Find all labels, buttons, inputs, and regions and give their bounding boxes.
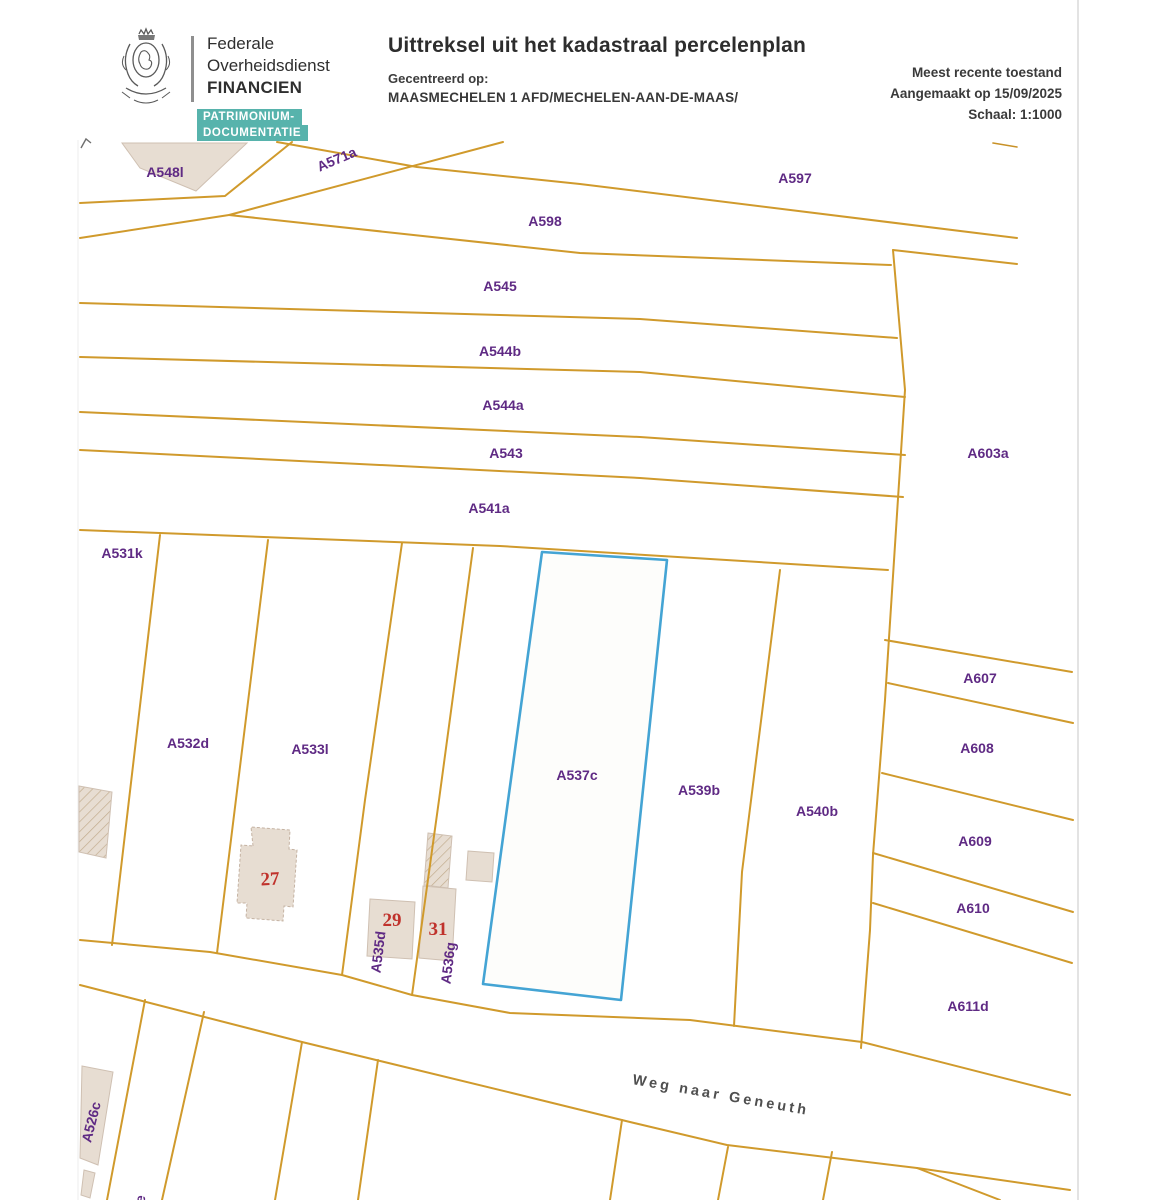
parcel-label-a571a: A571a <box>314 144 358 175</box>
boundary-line <box>112 535 160 945</box>
boundary-line <box>861 250 905 1048</box>
parcel-label-a610: A610 <box>956 900 990 916</box>
road-bottom-boundary <box>80 985 917 1168</box>
building-area-a548l <box>122 143 247 191</box>
boundary-line <box>993 143 1017 147</box>
parcel-label-a609: A609 <box>958 833 992 849</box>
boundary-line <box>80 303 897 338</box>
parcel-label-a533l: A533l <box>291 741 328 757</box>
boundary-line <box>888 683 1073 723</box>
building-strip-a526c-lower <box>81 1170 95 1198</box>
building-small-square <box>466 851 494 882</box>
parcel-label-a597: A597 <box>778 170 812 186</box>
boundary-line <box>882 773 1073 820</box>
parcel-label-a543: A543 <box>489 445 523 461</box>
parcel-label-a537c: A537c <box>556 767 597 783</box>
boundary-line <box>610 1120 622 1200</box>
street-name-label: Weg naar Geneuth <box>631 1072 810 1119</box>
cadastral-map-canvas: A548l A571a A597 A598 A545 A544b A544a A… <box>0 0 1168 1200</box>
parcel-label-a607: A607 <box>963 670 997 686</box>
parcel-label-a545: A545 <box>483 278 517 294</box>
parcel-label-a608: A608 <box>960 740 994 756</box>
house-number-29: 29 <box>383 910 402 931</box>
parcel-label-a603a: A603a <box>967 445 1008 461</box>
parcel-label-a531k: A531k <box>101 545 142 561</box>
boundary-line <box>917 1168 1070 1190</box>
parcel-label-a544a: A544a <box>482 397 523 413</box>
parcel-label-a541a: A541a <box>468 500 509 516</box>
cadastral-extract-page: Federale Overheidsdienst FINANCIEN PATRI… <box>0 0 1168 1200</box>
house-number-31: 31 <box>429 919 448 940</box>
map-corner-tick <box>81 139 91 148</box>
parcel-label-partial-bottom: e <box>131 1194 148 1200</box>
boundary-line <box>162 1012 204 1200</box>
parcel-label-a548l: A548l <box>146 164 183 180</box>
house-number-27: 27 <box>260 868 281 890</box>
boundary-line <box>80 530 888 570</box>
buildings <box>79 143 494 1198</box>
parcel-label-a611d: A611d <box>947 998 988 1014</box>
parcel-label-a532d: A532d <box>167 735 209 751</box>
boundary-line <box>358 1060 378 1200</box>
boundary-line <box>885 640 1072 672</box>
boundary-line <box>277 142 1017 238</box>
boundary-line <box>80 357 905 397</box>
parcel-label-a544b: A544b <box>479 343 521 359</box>
parcel-label-a539b: A539b <box>678 782 720 798</box>
boundary-line <box>275 1042 302 1200</box>
boundary-line <box>718 1147 728 1200</box>
boundary-line <box>893 250 1017 264</box>
parcel-label-a540b: A540b <box>796 803 838 819</box>
boundary-line <box>917 1168 1000 1200</box>
parcel-label-a598: A598 <box>528 213 562 229</box>
building-hatched-left-edge <box>79 786 112 858</box>
boundary-line <box>734 570 780 1026</box>
boundary-line <box>107 1000 145 1200</box>
boundary-line <box>823 1152 832 1200</box>
